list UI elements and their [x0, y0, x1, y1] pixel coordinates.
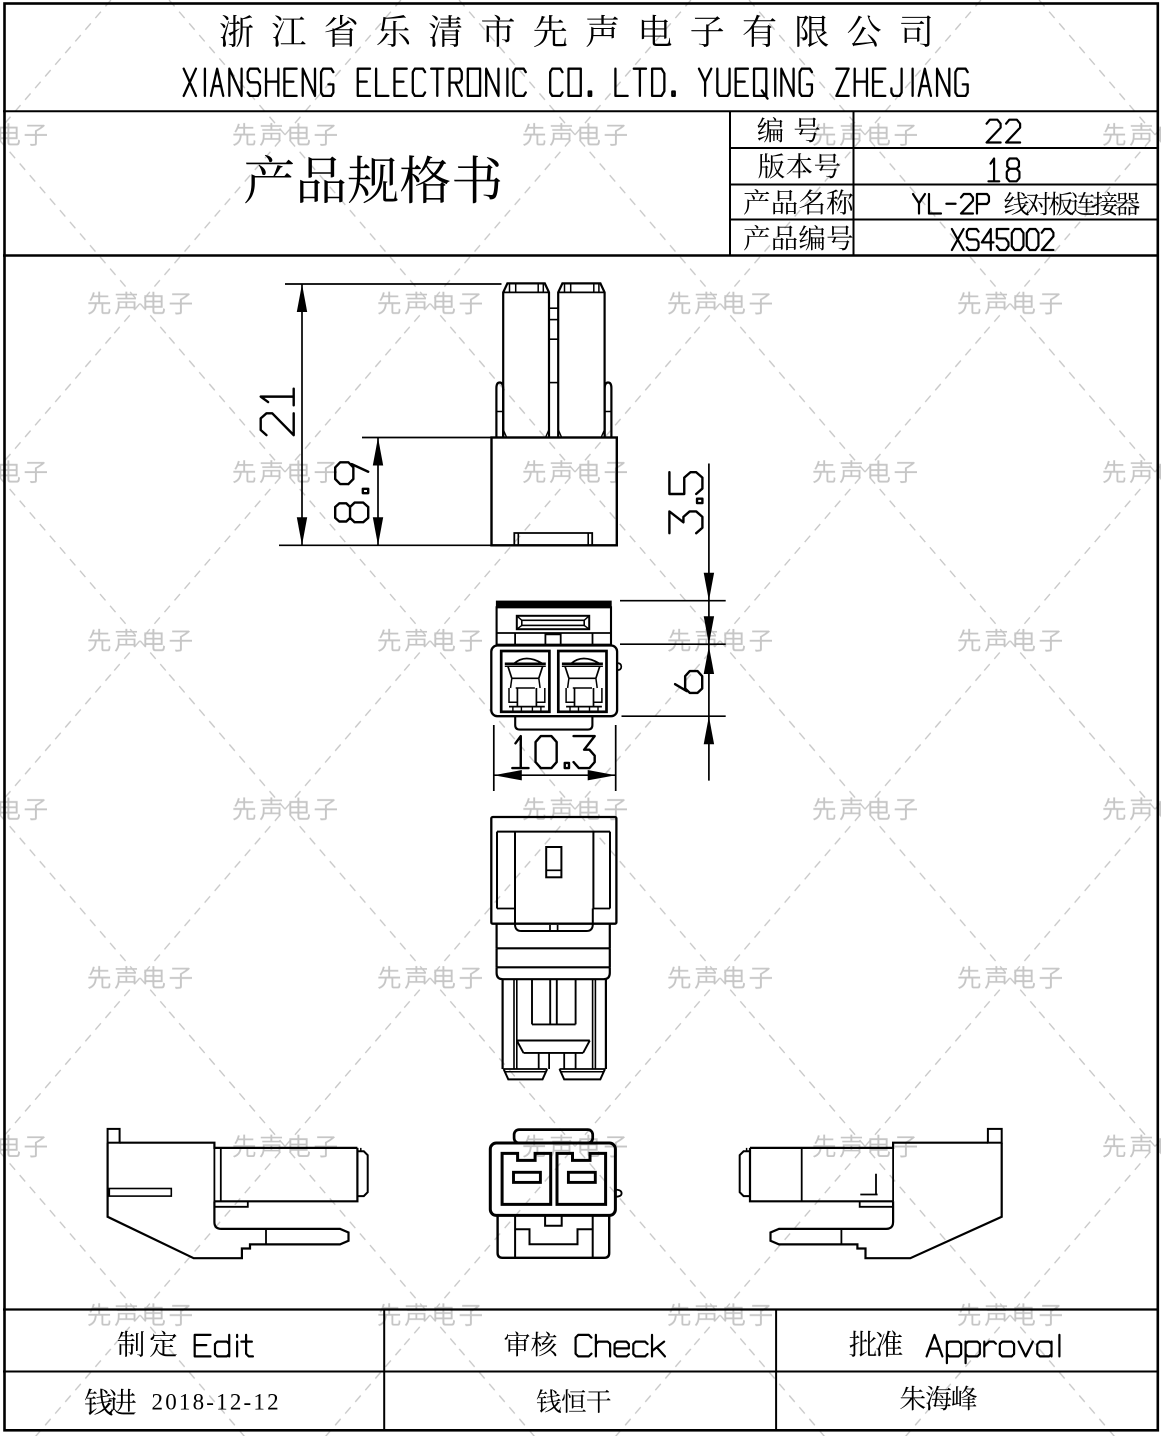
svg-text:2018-12-12: 2018-12-12: [152, 1390, 281, 1415]
